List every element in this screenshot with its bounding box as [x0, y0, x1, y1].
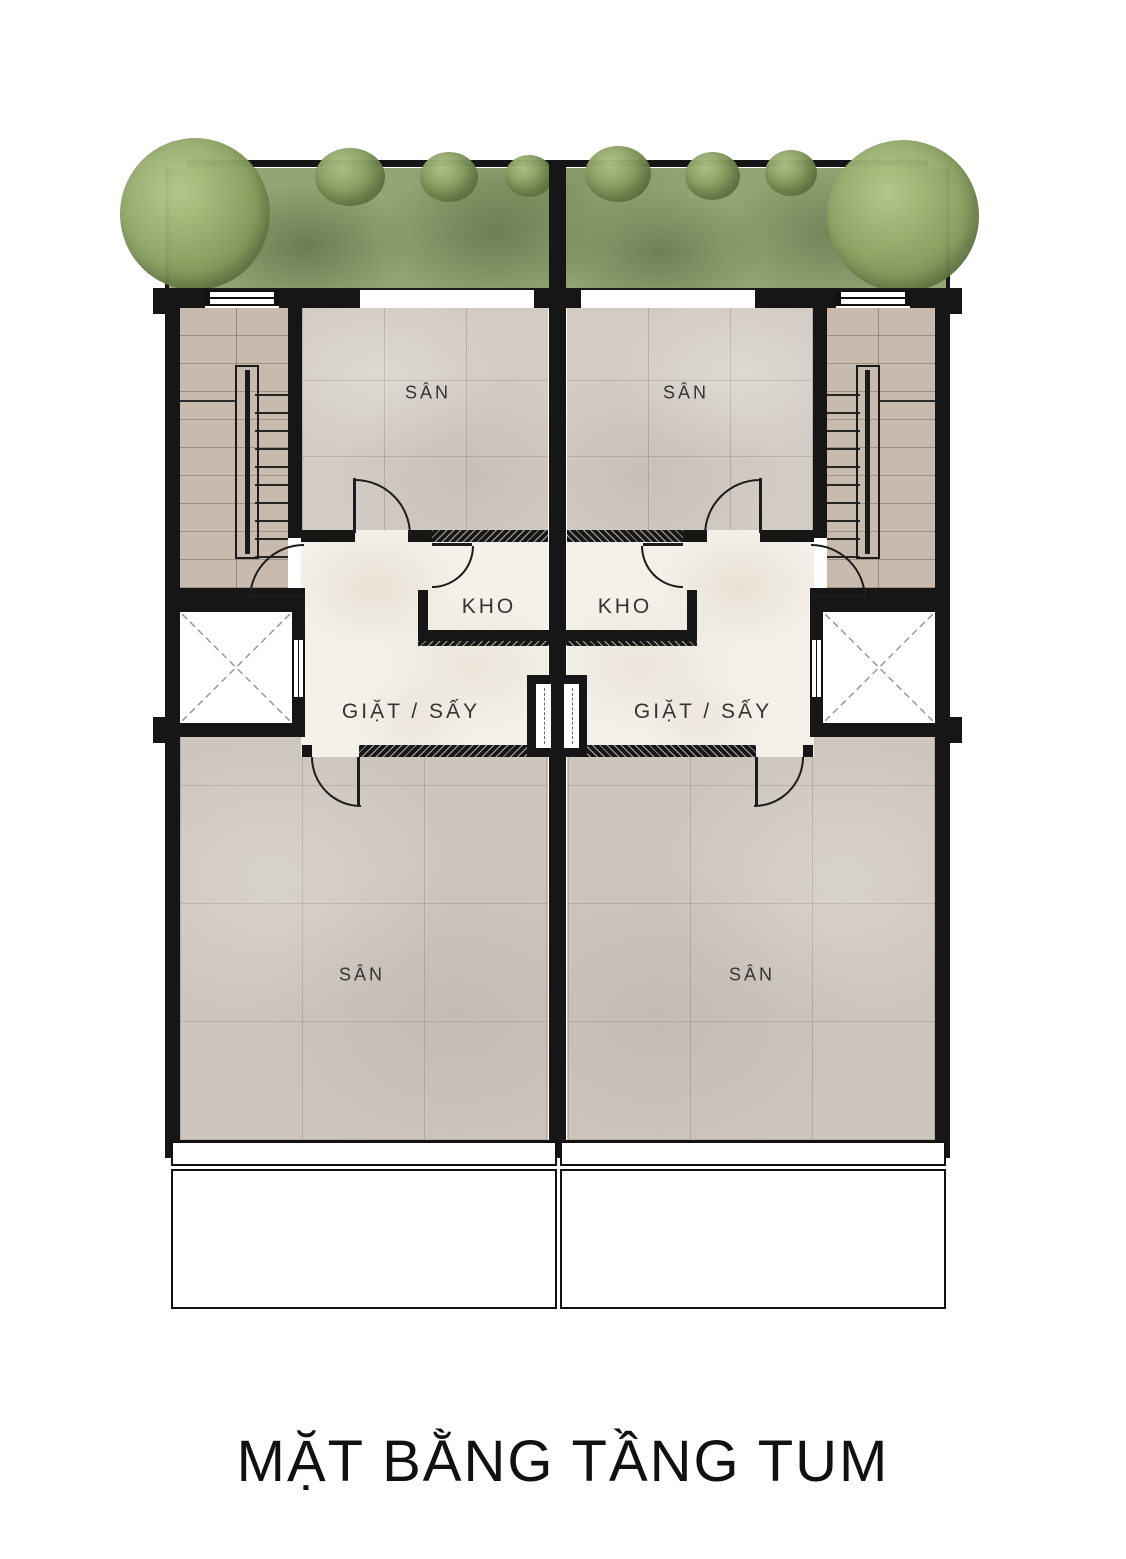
room-label-laundry-left: GIẶT / SẤY	[342, 700, 480, 724]
wall-pilaster	[153, 717, 165, 743]
elevator-door	[810, 640, 823, 697]
wall-segment	[803, 745, 813, 757]
stair-railing	[856, 365, 880, 559]
stair-landing-line	[880, 400, 935, 402]
room-label-kho-right: KHO	[598, 595, 653, 619]
elevator-door-line	[816, 640, 818, 697]
room-label-kho-left: KHO	[462, 595, 517, 619]
party-wall	[549, 160, 566, 1158]
floor-plan	[165, 160, 950, 1160]
hatch-wall	[567, 745, 756, 757]
elevator-shaft	[823, 612, 935, 723]
ledge-strip-right	[560, 1141, 946, 1166]
terrace-bottom-floor	[567, 737, 935, 1140]
hatch-wall	[565, 641, 697, 646]
ledge-box-right	[560, 1169, 946, 1309]
wall-segment	[301, 530, 355, 542]
elevator-wall-bottom	[165, 723, 305, 737]
unit-left	[165, 160, 558, 1160]
shaft-slot	[564, 684, 579, 748]
elevator-shaft	[180, 612, 292, 723]
window-icon	[836, 290, 910, 306]
hatch-wall	[418, 641, 550, 646]
room-label-laundry-right: GIẶT / SẤY	[634, 700, 772, 724]
wall-pilaster	[153, 288, 165, 314]
stair-railing	[235, 365, 259, 559]
elevator-door	[292, 640, 305, 697]
room-label-san-top-left: SÂN	[405, 383, 451, 404]
shaft-louver-icon	[572, 688, 573, 744]
plan-title: MẶT BẰNG TẦNG TUM	[0, 1428, 1126, 1495]
storage-wall-bottom	[418, 630, 550, 641]
elevator-wall-bottom	[810, 723, 950, 737]
room-label-san-bottom-right: SÂN	[729, 965, 775, 986]
stair-terrace-wall	[288, 288, 302, 538]
wall-segment	[408, 530, 432, 542]
stair-landing-line	[180, 400, 235, 402]
storage-wall-bottom	[565, 630, 697, 641]
wall-pilaster	[950, 288, 962, 314]
shaft-louver-icon	[544, 688, 545, 744]
ledge-strip-left	[171, 1141, 557, 1166]
hatch-wall	[432, 530, 548, 542]
wall-segment	[302, 745, 312, 757]
room-label-san-top-right: SÂN	[663, 383, 709, 404]
wall-pilaster	[950, 717, 962, 743]
elevator-x-icon	[823, 612, 935, 723]
hatch-wall	[567, 530, 683, 542]
room-label-san-bottom-left: SÂN	[339, 965, 385, 986]
elevator-x-icon	[180, 612, 292, 723]
unit-right	[557, 160, 950, 1160]
ledge-box-left	[171, 1169, 557, 1309]
exterior-wall-right	[935, 288, 950, 1140]
elevator-door-line	[298, 640, 300, 697]
terrace-bottom-floor	[180, 737, 548, 1140]
wall-segment	[760, 530, 814, 542]
terrace-top-floor	[567, 308, 813, 533]
stair-treads-icon	[255, 388, 288, 558]
exterior-wall-left	[165, 288, 180, 1140]
floor-plan-canvas: SÂN SÂN KHO KHO GIẶT / SẤY GIẶT / SẤY SÂ…	[0, 0, 1126, 1559]
terrace-top-floor	[302, 308, 548, 533]
window-icon	[205, 290, 279, 306]
hatch-wall	[359, 745, 548, 757]
shaft-slot	[536, 684, 551, 748]
stair-terrace-wall	[813, 288, 827, 538]
